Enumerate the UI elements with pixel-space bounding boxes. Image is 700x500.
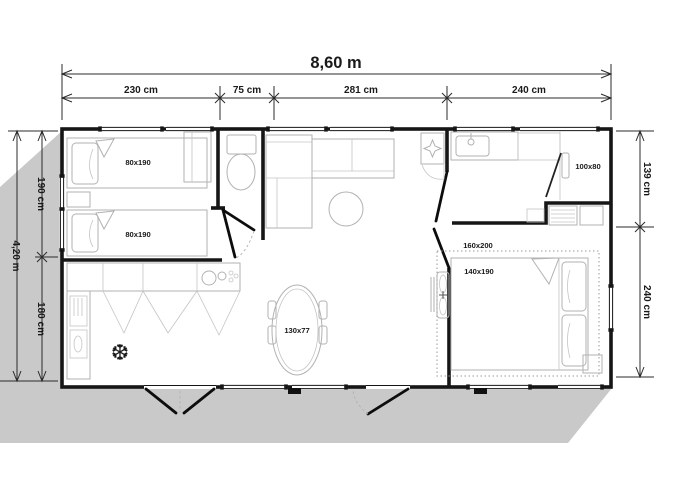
- shower-label: 100x80: [575, 162, 600, 171]
- dim-190: 190 cm: [35, 177, 46, 211]
- dim-240-top: 240 cm: [512, 85, 546, 96]
- dim-281: 281 cm: [344, 85, 378, 96]
- floor-plan-page: 8,60 m 230 cm 75 cm 281 cm 240 cm: [0, 0, 700, 500]
- dim-230: 230 cm: [124, 85, 158, 96]
- dim-240-right: 240 cm: [641, 285, 652, 319]
- dim-180: 180 cm: [35, 302, 46, 336]
- overall-width-label: 8,60 m: [310, 54, 361, 72]
- dining-table-label: 130x77: [284, 326, 309, 335]
- twin-bed-2-label: 80x190: [125, 230, 150, 239]
- freezer-snowflake-icon: ❆: [111, 340, 129, 365]
- floor-plan-drawing: 8,60 m 230 cm 75 cm 281 cm 240 cm: [0, 0, 700, 500]
- bed-footprint-label: 160x200: [463, 241, 493, 250]
- door-handle-tab-2: [474, 388, 487, 394]
- twin-bed-1-label: 80x190: [125, 158, 150, 167]
- window-right-wall: [608, 286, 613, 330]
- dimension-right: 139 cm 240 cm: [616, 131, 654, 377]
- windows-top-wall: [100, 126, 598, 131]
- bed-mattress-label: 140x190: [464, 267, 494, 276]
- dim-420-total: 4,20 m: [10, 240, 21, 271]
- dimension-top: 8,60 m 230 cm 75 cm 281 cm 240 cm: [62, 54, 611, 120]
- dim-75: 75 cm: [233, 85, 261, 96]
- window-left-wall: [59, 176, 64, 250]
- door-handle-tab-1: [288, 388, 301, 394]
- dim-139: 139 cm: [641, 162, 652, 196]
- tv-unit: [431, 272, 449, 318]
